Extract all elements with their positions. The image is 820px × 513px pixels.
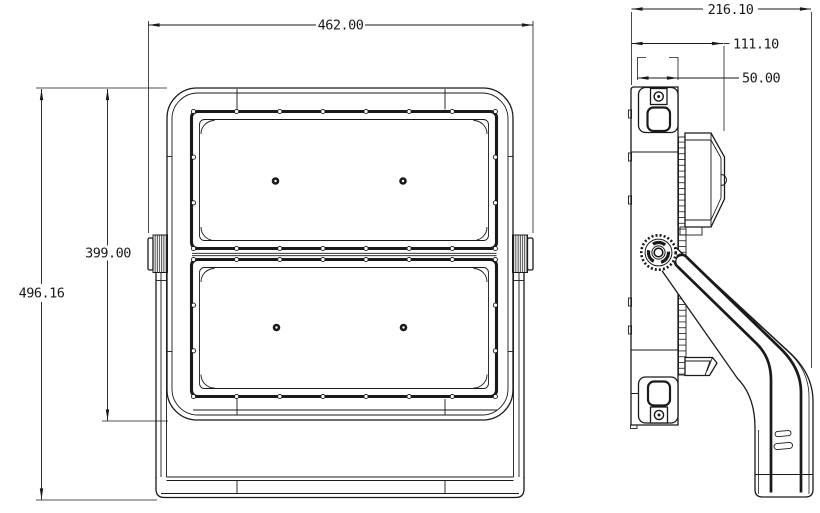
- led-module-top: [191, 109, 497, 250]
- dimension-overall-depth-label: 216.10: [708, 2, 754, 18]
- dimension-housing-depth-label: 111.10: [733, 37, 779, 53]
- tilt-knob-side: [640, 234, 677, 271]
- led-module-bottom: [191, 257, 497, 398]
- dimension-front-width-label: 462.00: [318, 18, 364, 34]
- front-view: 462.00 399.00 496.16: [19, 18, 533, 501]
- bottom-handle: [639, 377, 679, 423]
- top-handle: [639, 88, 679, 133]
- left-adjustment-knob: [148, 235, 168, 273]
- dimension-opening-height-label: 399.00: [85, 246, 131, 262]
- driver-box: [685, 133, 726, 227]
- right-adjustment-knob: [513, 235, 534, 273]
- side-view: 216.10 111.10 50.00: [629, 2, 814, 497]
- dimension-bracket-spacing-label: 50.00: [742, 71, 781, 87]
- dimension-bracket-spacing: 50.00: [638, 58, 781, 87]
- dimension-overall-height-label: 496.16: [19, 286, 65, 302]
- drawing-canvas: 462.00 399.00 496.16: [0, 0, 820, 513]
- dimension-overall-height: 496.16: [19, 88, 167, 500]
- technical-drawing: 462.00 399.00 496.16: [0, 0, 820, 513]
